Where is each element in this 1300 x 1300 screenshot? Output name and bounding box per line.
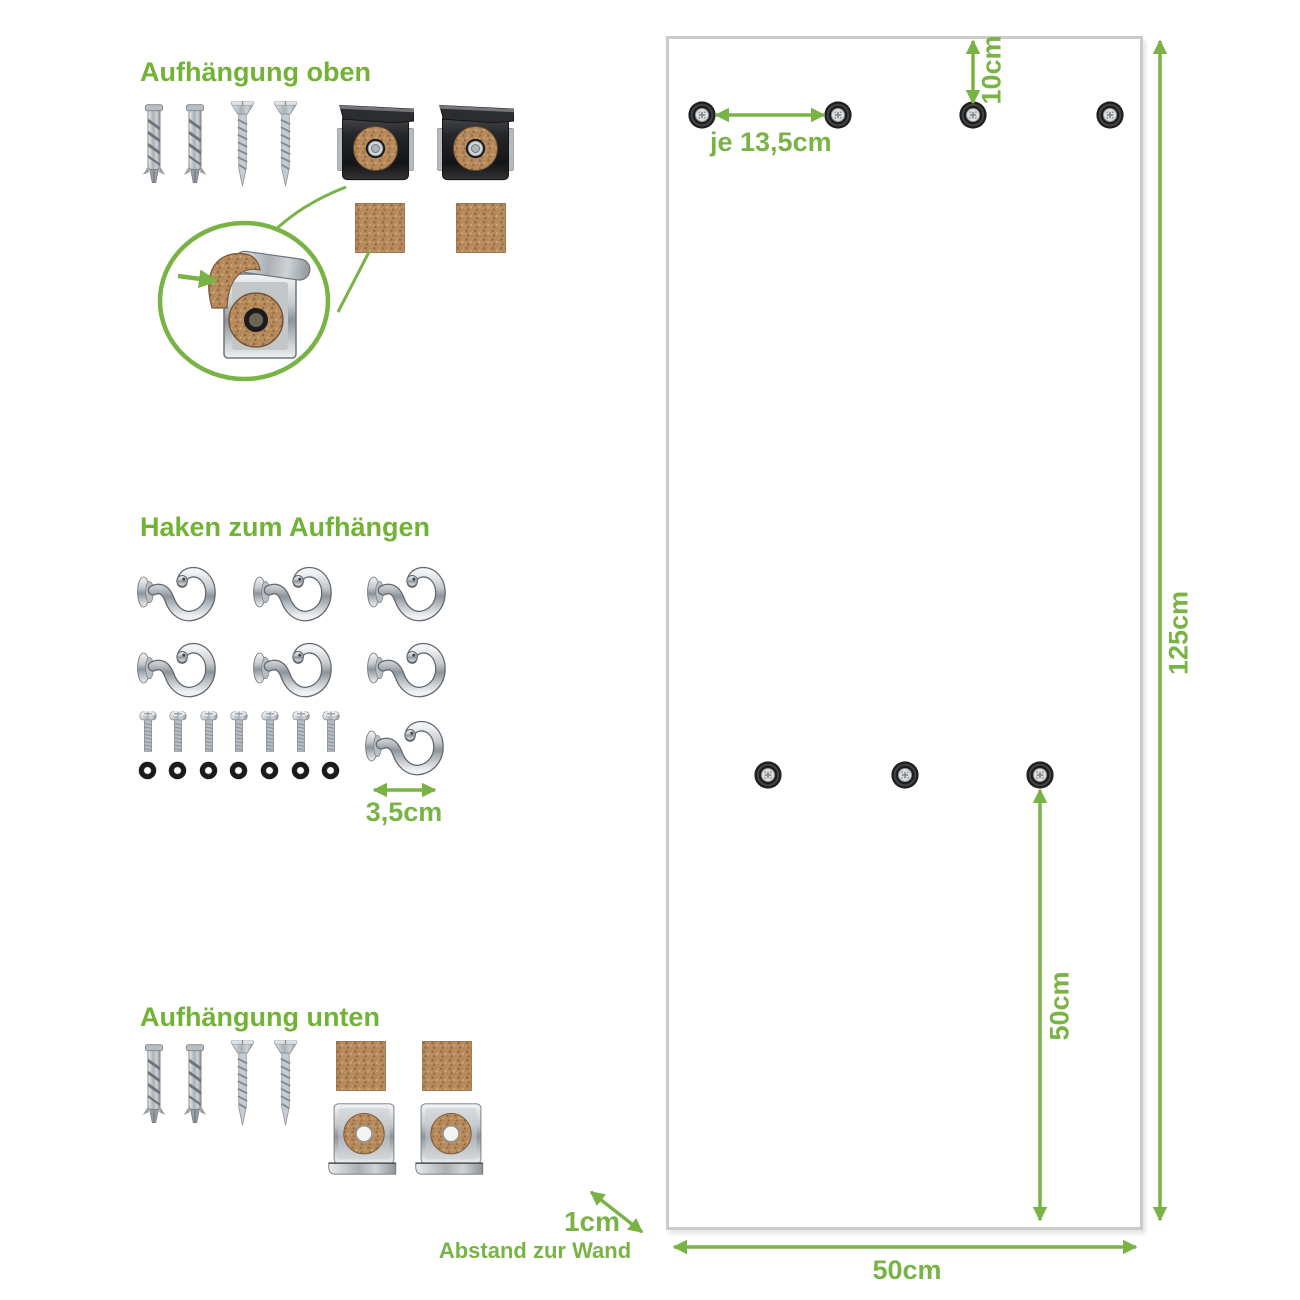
mirror-clip-bottom-icon: [416, 1104, 483, 1174]
magnifier-circle-icon: [160, 223, 328, 379]
top-offset-label: 10cm: [977, 35, 1008, 104]
bolt-icon: [201, 711, 217, 751]
countersunk-screw-icon: [274, 101, 296, 186]
mirror-clip-top-icon: [337, 105, 414, 179]
mirror-clip-bottom-icon: [329, 1104, 396, 1174]
wall-gap-caption: Abstand zur Wand: [439, 1238, 631, 1264]
bottom-mount-title: Aufhängung unten: [140, 1002, 380, 1033]
wall-plug-icon: [143, 1045, 166, 1123]
cork-pad-icon: [355, 203, 404, 252]
cup-hook-icon: [254, 648, 327, 692]
countersunk-screw-icon: [231, 1040, 253, 1125]
cork-pad-icon: [336, 1041, 385, 1090]
middle-to-bottom-label: 50cm: [1045, 971, 1076, 1040]
height-label: 125cm: [1164, 591, 1195, 675]
top-mount-title: Aufhängung oben: [140, 57, 371, 88]
hooks-title: Haken zum Aufhängen: [140, 512, 430, 543]
cork-pad-icon: [456, 203, 505, 252]
clip-detail-magnifier: [160, 187, 369, 379]
washer-icon: [322, 762, 340, 780]
hole-spacing-label: je 13,5cm: [710, 127, 832, 158]
wall-plug-icon: [184, 1045, 207, 1123]
bolt-icon: [262, 711, 278, 751]
width-label: 50cm: [872, 1255, 941, 1286]
cup-hook-icon: [368, 572, 441, 616]
bottom-mount-parts: [143, 1040, 483, 1174]
washer-icon: [169, 762, 187, 780]
cup-hook-icon: [254, 572, 327, 616]
wall-gap-label: 1cm: [564, 1206, 620, 1238]
wall-plug-icon: [184, 105, 207, 183]
washer-icon: [261, 762, 279, 780]
instruction-sheet: Aufhängung oben Haken zum Aufhängen Aufh…: [0, 0, 1300, 1300]
bolt-icon: [323, 711, 339, 751]
hook-width-label: 3,5cm: [366, 797, 443, 828]
washer-icon: [230, 762, 248, 780]
countersunk-screw-icon: [231, 101, 253, 186]
washer-icon: [139, 762, 157, 780]
cup-hook-icon: [138, 572, 211, 616]
clip-detail-drawing: [209, 250, 311, 358]
detail-pointer-arrow-icon: [178, 276, 216, 281]
washer-icon: [200, 762, 218, 780]
cork-pad-icon: [422, 1041, 471, 1090]
washer-icon: [292, 762, 310, 780]
cup-hook-icon: [368, 648, 441, 692]
cup-hook-icon: [138, 648, 211, 692]
bolt-icon: [231, 711, 247, 751]
bolt-icon: [293, 711, 309, 751]
wall-panel: [666, 36, 1143, 1230]
mirror-clip-top-icon: [437, 105, 514, 179]
hook-parts: [138, 572, 441, 790]
countersunk-screw-icon: [274, 1040, 296, 1125]
wall-plug-icon: [143, 105, 166, 183]
bolt-icon: [140, 711, 156, 751]
top-mount-parts: [143, 101, 514, 253]
cup-hook-icon: [366, 726, 439, 770]
bolt-icon: [170, 711, 186, 751]
